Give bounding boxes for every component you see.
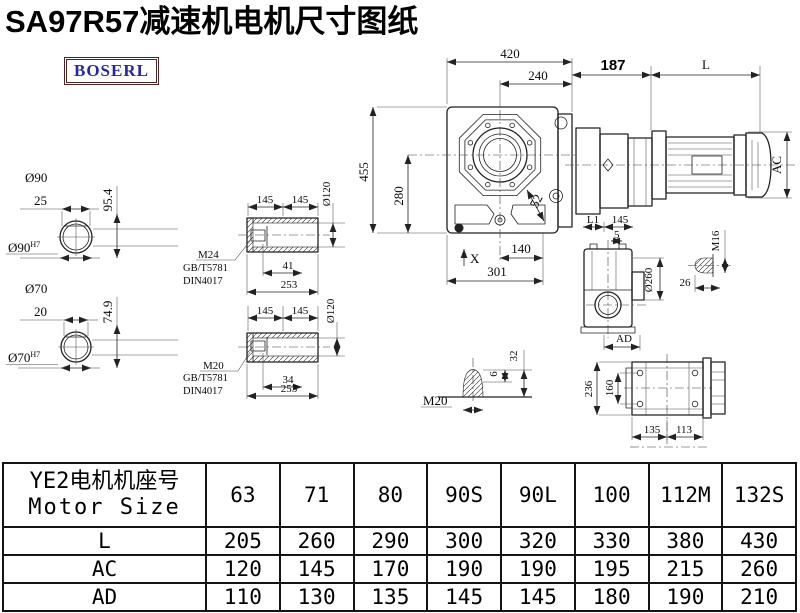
dim-label: 26: [680, 277, 692, 289]
cell: 180: [575, 583, 649, 611]
dim-label: Ø260: [643, 267, 655, 292]
cell: 145: [501, 583, 575, 611]
dim-label: Ø70H7: [8, 350, 40, 365]
thread-label: M20: [423, 393, 448, 408]
bolt-detail-m20: 6 32 M20: [421, 350, 532, 410]
cell: 430: [722, 527, 796, 555]
cell: 110: [206, 583, 280, 611]
motor-dimension-table: YE2电机机座号 Motor Size 63 71 80 90S 90L 100…: [2, 462, 797, 612]
col-header: 90S: [427, 463, 501, 527]
col-header: 71: [280, 463, 354, 527]
cell: 330: [575, 527, 649, 555]
thread-label: M16: [710, 230, 722, 251]
standard-label: DIN4017: [183, 276, 223, 287]
dim-label: Ø120: [321, 181, 333, 206]
dim-label: 145: [257, 305, 274, 317]
cell: 190: [649, 583, 723, 611]
dim-label: L1: [587, 214, 599, 226]
dim-label: 280: [391, 186, 406, 206]
dim-label: Ø120: [325, 298, 337, 323]
cell: 195: [575, 555, 649, 583]
dim-label: Ø90: [25, 170, 47, 185]
table-row: L 205 260 290 300 320 330 380 430: [3, 527, 796, 555]
col-header: 63: [206, 463, 280, 527]
motor-assembly-view: 187 L AC: [565, 57, 795, 214]
cell: 290: [354, 527, 428, 555]
dim-label: L: [702, 57, 710, 72]
cell: 190: [501, 555, 575, 583]
header-cn: YE2电机机座号: [4, 469, 205, 495]
standard-label: DIN4017: [183, 386, 223, 397]
cell: 320: [501, 527, 575, 555]
cell: 190: [427, 555, 501, 583]
drain-plug: [455, 224, 464, 233]
cell: 170: [354, 555, 428, 583]
col-header: 80: [354, 463, 428, 527]
dim-label: AD: [616, 333, 632, 345]
dim-label: 236: [583, 380, 595, 397]
dim-label: 253: [281, 279, 298, 291]
cell: 215: [649, 555, 723, 583]
cell: 135: [354, 583, 428, 611]
dim-label: 145: [292, 305, 309, 317]
cell: 145: [280, 555, 354, 583]
cell: 145: [427, 583, 501, 611]
technical-drawing: Ø90 25 95.4 Ø90H7 Ø70 20 74.9 Ø70H7: [0, 0, 800, 460]
cell: 120: [206, 555, 280, 583]
dim-label: 145: [612, 214, 629, 226]
cell: 260: [280, 527, 354, 555]
row-label: L: [3, 527, 206, 555]
cell: 210: [722, 583, 796, 611]
sleeve-top-view: 145 145 Ø120 M24 GB/T5781 DIN4017 41 253: [183, 181, 345, 295]
dim-label: 32: [508, 351, 520, 362]
dim-label: 74.9: [100, 301, 115, 324]
dim-label: 253: [281, 383, 298, 395]
col-header: 132S: [722, 463, 796, 527]
cell: 380: [649, 527, 723, 555]
row-label: AC: [3, 555, 206, 583]
sleeve-bottom-view: 145 145 Ø120 M20 GB/T5781 DIN4017 34 253: [183, 298, 345, 399]
standard-label: GB/T5781: [183, 373, 228, 384]
dim-label: 420: [500, 46, 520, 61]
table-row: AC 120 145 170 190 190 195 215 260: [3, 555, 796, 583]
dim-label: 145: [257, 194, 274, 206]
dim-label: 25: [34, 193, 47, 208]
dim-label: AC: [769, 156, 784, 174]
thread-label: M24: [198, 249, 219, 261]
row-label: AD: [3, 583, 206, 611]
dim-label: Ø70: [25, 281, 47, 296]
dim-label: 135: [644, 424, 661, 436]
dim-label: 455: [356, 162, 371, 182]
dim-label: 301: [487, 264, 507, 279]
table-header-row: YE2电机机座号 Motor Size 63 71 80 90S 90L 100…: [3, 463, 796, 527]
col-header: 112M: [649, 463, 723, 527]
dim-label: Ø90H7: [8, 240, 40, 255]
dim-label: 41: [283, 260, 294, 272]
gearbox-top-view: 236 160 135 113: [583, 354, 725, 447]
dim-label: 6: [488, 371, 500, 377]
dim-label: 160: [604, 379, 616, 396]
thread-label: M20: [203, 360, 224, 372]
cell: 130: [280, 583, 354, 611]
gearbox-front-view: 420 240 455 280 52 140 X 301: [356, 46, 576, 285]
cell: 300: [427, 527, 501, 555]
header-en: Motor Size: [4, 495, 205, 521]
dim-label: 140: [511, 241, 531, 256]
dim-label: 145: [292, 194, 309, 206]
shaft-section-70-view: Ø70 20 74.9 Ø70H7: [6, 281, 178, 368]
cell: 260: [722, 555, 796, 583]
standard-label: GB/T5781: [183, 263, 228, 274]
dim-label: 187: [600, 57, 625, 74]
cell: 205: [206, 527, 280, 555]
x-mark: X: [470, 251, 480, 266]
header-motor-size: YE2电机机座号 Motor Size: [3, 463, 206, 527]
bolt-detail-m16: M16 26: [680, 230, 733, 292]
dim-label: 113: [676, 424, 693, 436]
col-header: 90L: [501, 463, 575, 527]
dim-label: 240: [528, 68, 548, 83]
gearbox-side-view: L1 145 5 Ø260 AD: [581, 214, 664, 350]
dim-label: 20: [34, 304, 47, 319]
dim-label: 5: [614, 229, 620, 241]
shaft-section-90-view: Ø90 25 95.4 Ø90H7: [6, 170, 178, 258]
col-header: 100: [575, 463, 649, 527]
dim-label: 95.4: [100, 188, 115, 211]
table-row: AD 110 130 135 145 145 180 190 210: [3, 583, 796, 611]
